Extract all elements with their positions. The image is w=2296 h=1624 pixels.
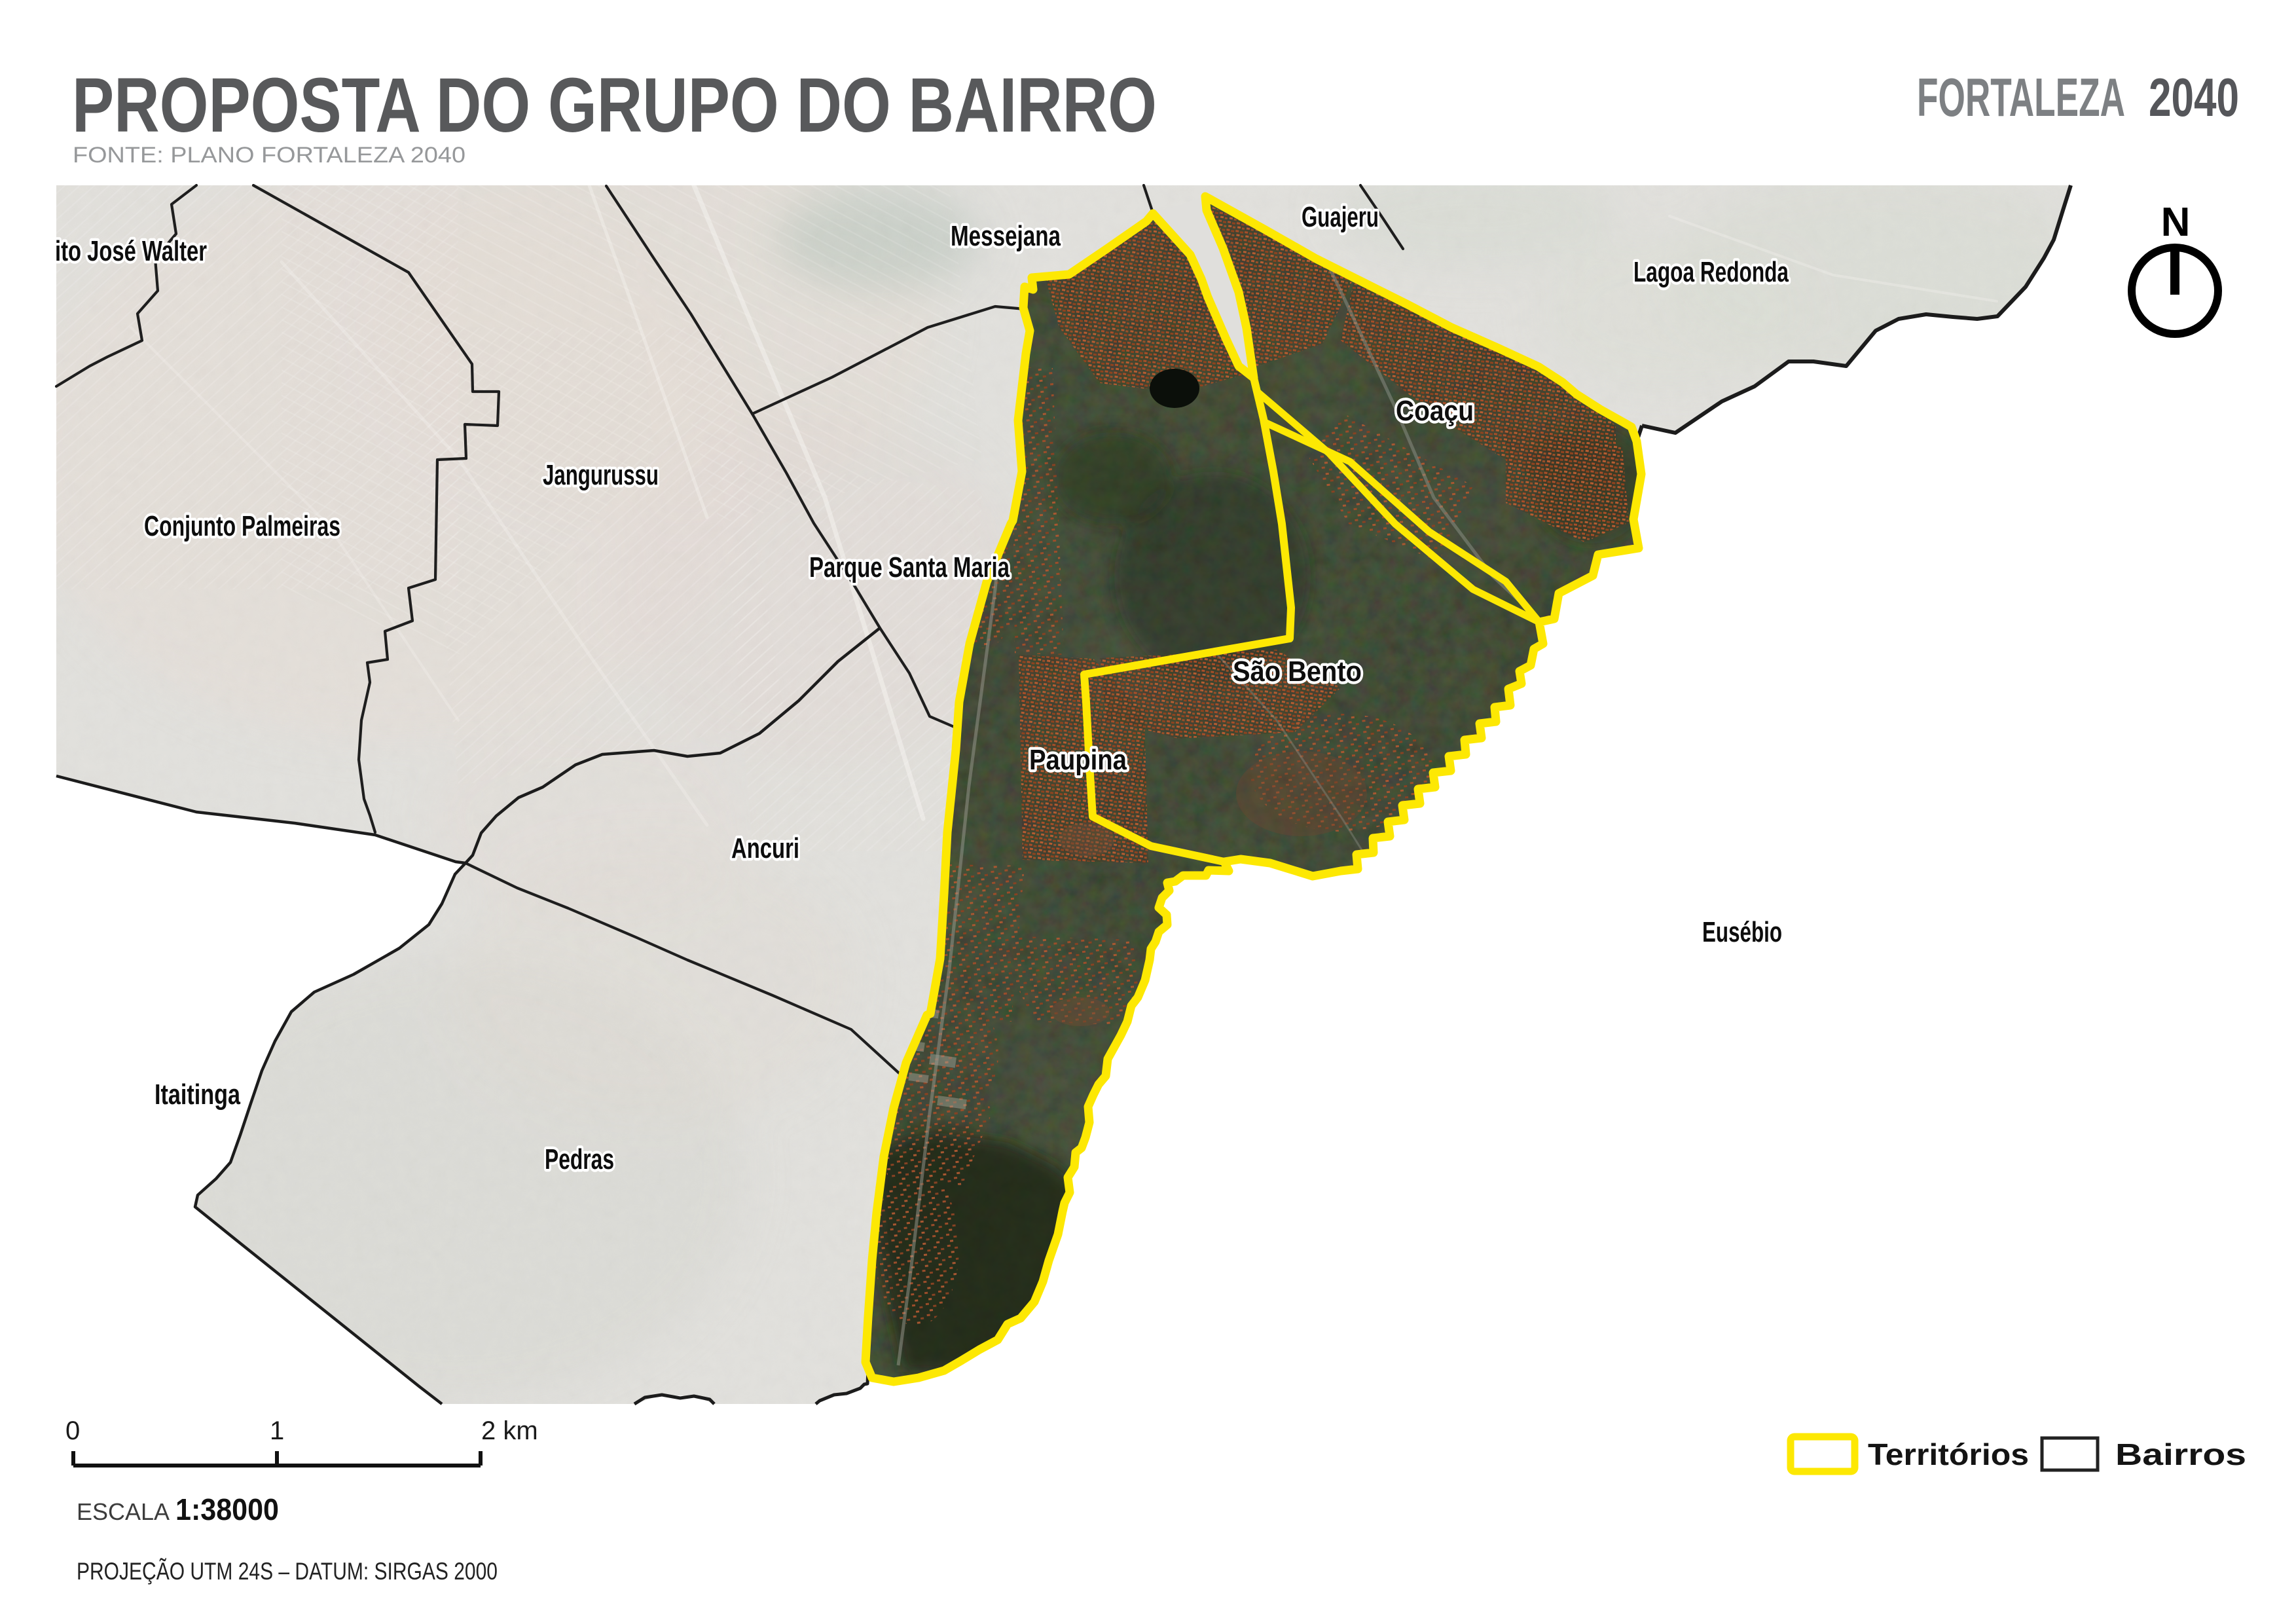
svg-text:1:38000: 1:38000 (175, 1492, 279, 1526)
svg-text:Jangurussu: Jangurussu (543, 459, 659, 491)
svg-text:Bairros: Bairros (2115, 1437, 2246, 1471)
svg-text:Parque Santa Maria: Parque Santa Maria (809, 551, 1010, 583)
svg-text:Pedras: Pedras (545, 1143, 614, 1175)
svg-text:Itaitinga: Itaitinga (155, 1079, 240, 1111)
svg-text:Coaçu: Coaçu (1396, 395, 1474, 427)
svg-text:Conjunto Palmeiras: Conjunto Palmeiras (144, 510, 340, 542)
svg-text:Lagoa Redonda: Lagoa Redonda (1633, 256, 1789, 288)
svg-text:Eusébio: Eusébio (1702, 916, 1782, 948)
svg-text:2 km: 2 km (481, 1416, 538, 1445)
svg-text:Guajeru: Guajeru (1302, 201, 1379, 233)
svg-text:Messejana: Messejana (951, 220, 1061, 252)
svg-text:Paupina: Paupina (1029, 744, 1127, 776)
svg-text:Territórios: Territórios (1868, 1437, 2029, 1471)
svg-text:N: N (2161, 200, 2191, 245)
svg-text:0: 0 (65, 1416, 80, 1445)
svg-text:ESCALA: ESCALA (77, 1498, 170, 1525)
svg-text:FORTALEZA: FORTALEZA (1917, 67, 2125, 128)
svg-text:PROJEÇÃO UTM 24S – DATUM: SIRG: PROJEÇÃO UTM 24S – DATUM: SIRGAS 2000 (77, 1558, 498, 1585)
svg-text:1: 1 (270, 1416, 284, 1445)
svg-text:PROPOSTA DO GRUPO DO BAIRRO: PROPOSTA DO GRUPO DO BAIRRO (72, 62, 1157, 149)
svg-text:Ancuri: Ancuri (731, 832, 799, 864)
svg-text:ito José Walter: ito José Walter (55, 235, 207, 267)
svg-text:2040: 2040 (2149, 67, 2239, 128)
svg-text:São Bento: São Bento (1233, 655, 1362, 688)
svg-text:FONTE: PLANO FORTALEZA 2040: FONTE: PLANO FORTALEZA 2040 (73, 143, 465, 168)
